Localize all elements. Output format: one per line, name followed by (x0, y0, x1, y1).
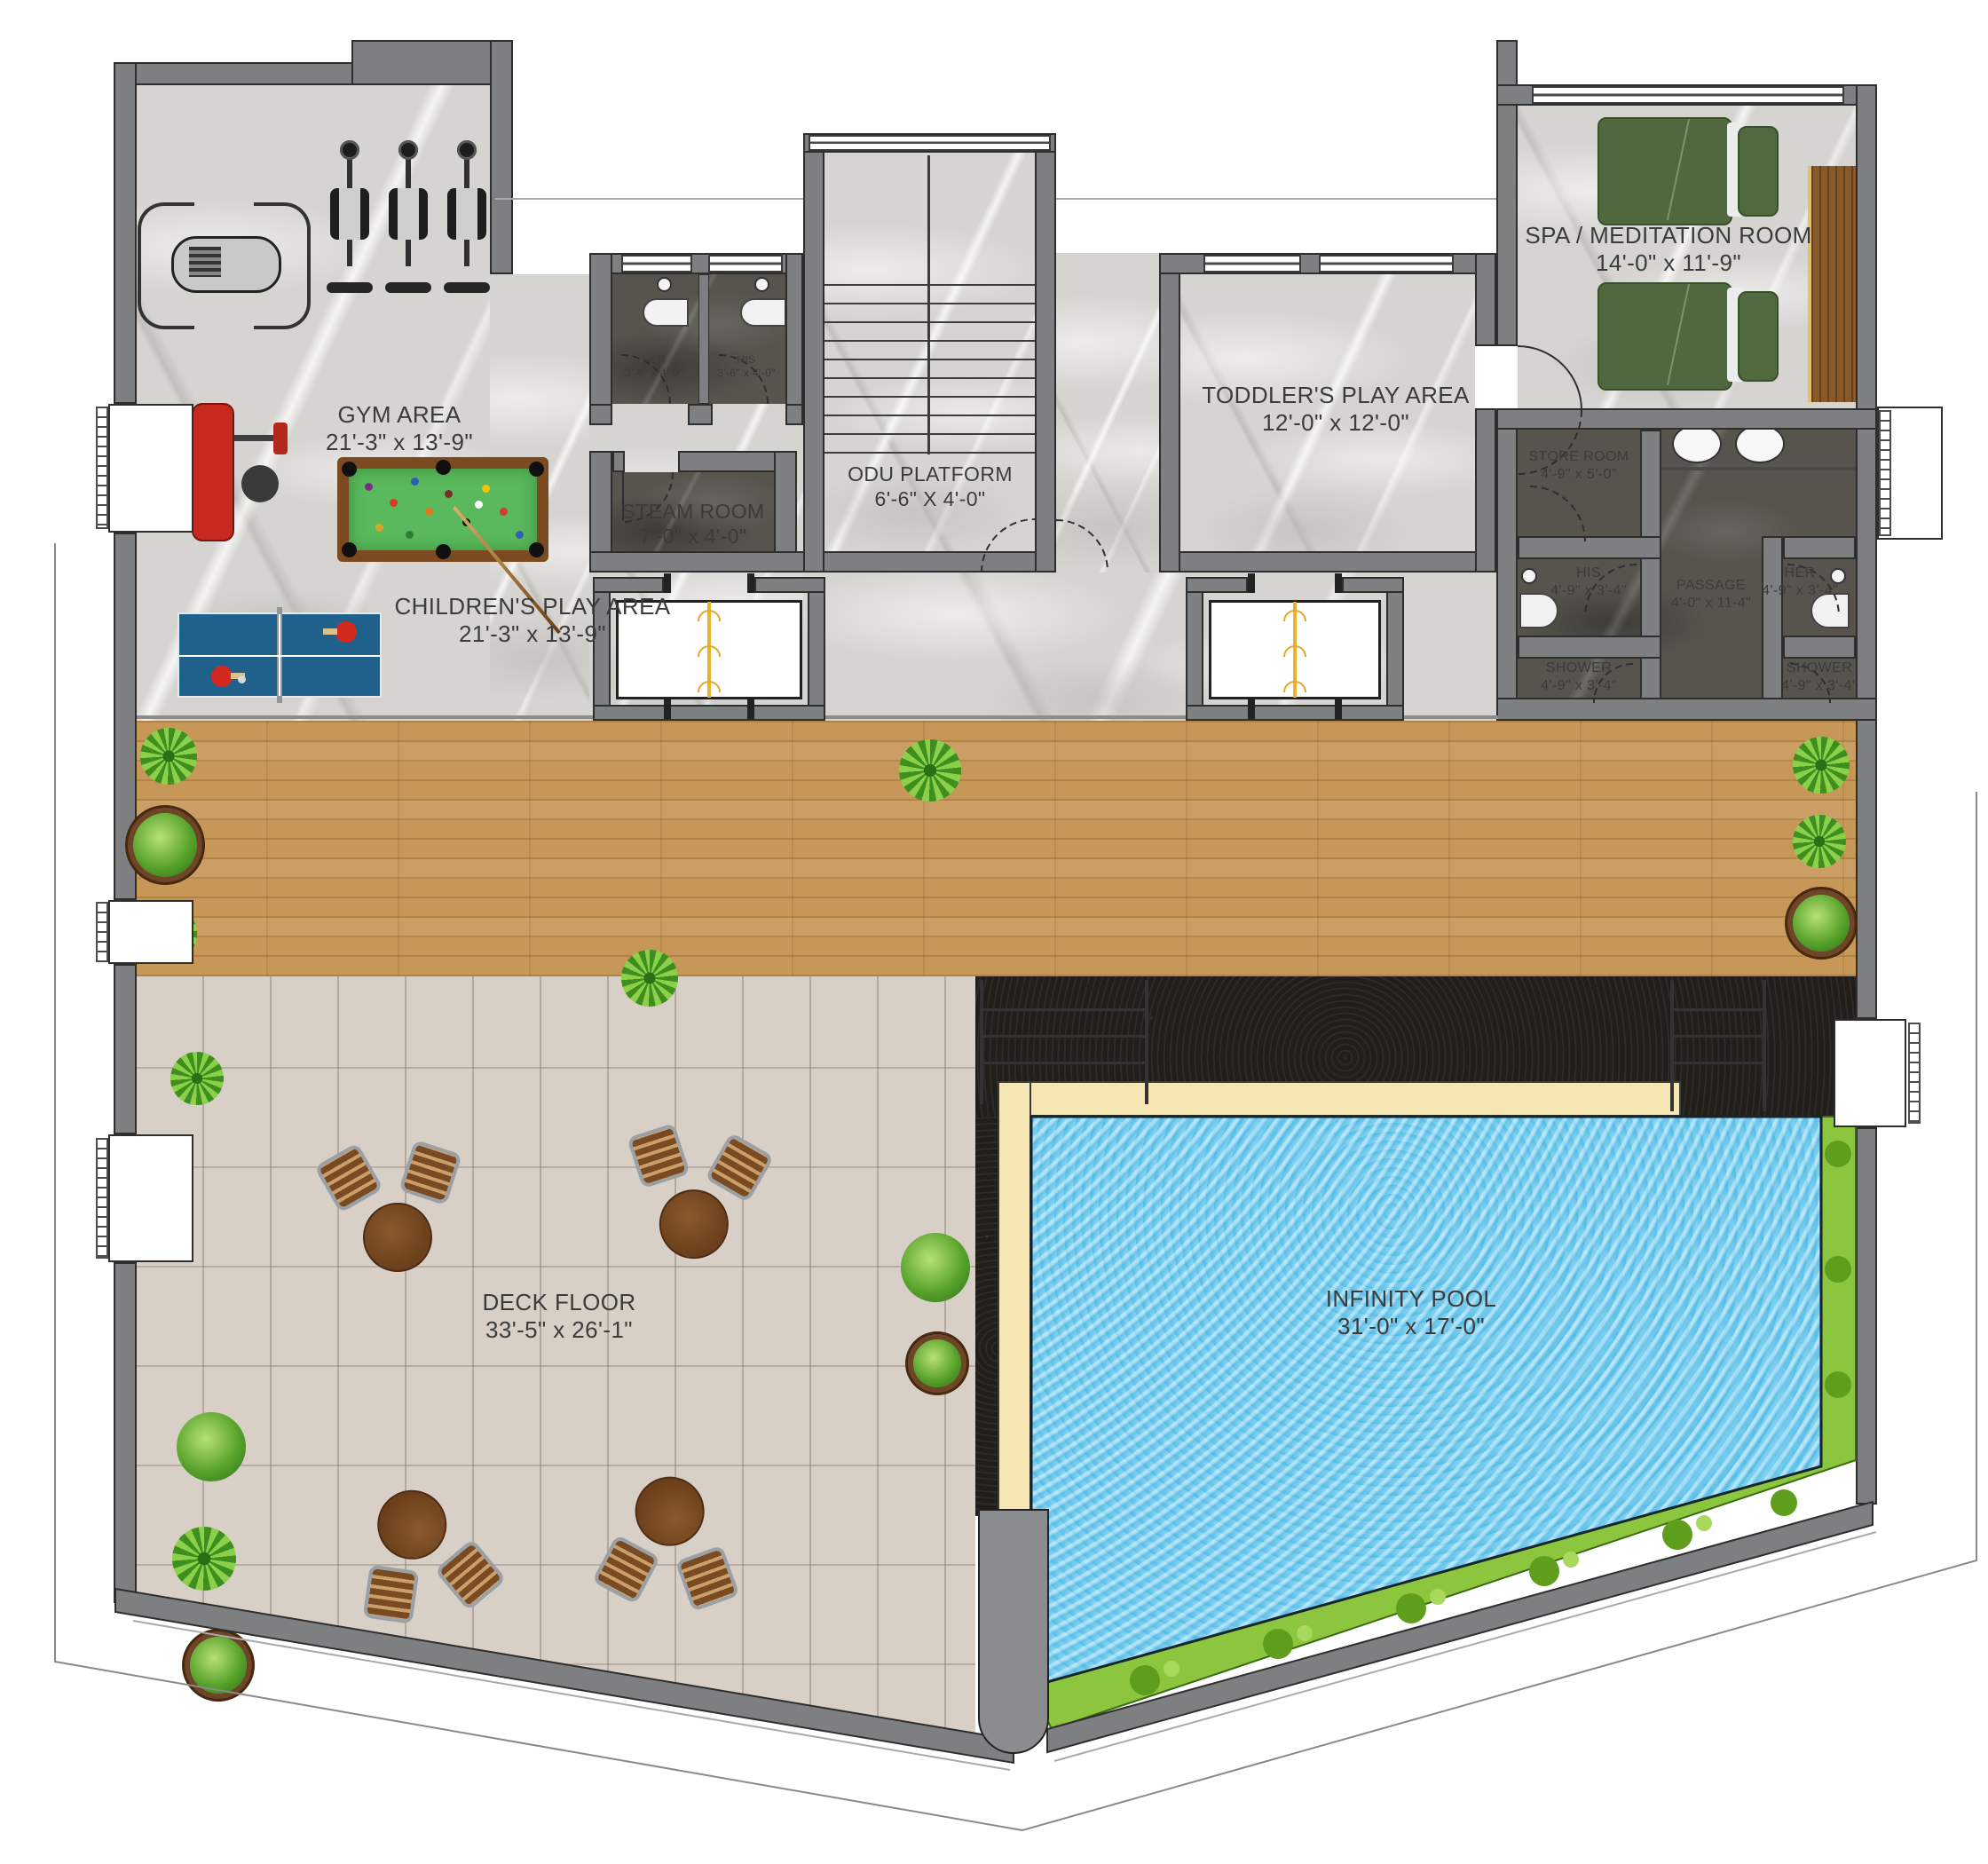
wall (1159, 551, 1518, 573)
tick (747, 573, 754, 593)
shape: SHOWER (1541, 660, 1617, 677)
bd (1597, 282, 1732, 391)
ch (363, 1565, 420, 1624)
bd (1597, 117, 1732, 225)
wall (1186, 705, 1404, 721)
pool-step (1674, 1008, 1763, 1011)
bl (365, 483, 373, 491)
sink (754, 277, 769, 292)
shape: PASSAGE (1671, 577, 1751, 595)
shape: SPA / MEDITATION ROOM (1525, 222, 1811, 249)
bl (390, 499, 398, 507)
tb (629, 1471, 709, 1551)
wall (114, 62, 137, 404)
cardio-machine (442, 140, 492, 293)
wall (754, 577, 825, 593)
gp2 (1430, 1589, 1446, 1605)
pillar (978, 1509, 1049, 1754)
wall (593, 577, 664, 593)
bl (425, 508, 433, 516)
balcony-railing (96, 902, 108, 962)
shape (323, 628, 337, 635)
shape: 4'-9" x 3'-4" (1762, 582, 1838, 600)
wall (1496, 698, 1877, 721)
pk (436, 544, 451, 559)
plant (913, 1339, 961, 1387)
grass-plant (1825, 1371, 1851, 1398)
wall (1518, 536, 1661, 559)
pillow (1738, 291, 1779, 382)
wall (1186, 577, 1248, 593)
wall (1518, 636, 1661, 659)
shape: DECK FLOOR (482, 1289, 635, 1316)
balcony-railing (1879, 410, 1891, 536)
pool-ladder-rail (1670, 980, 1674, 1111)
step (983, 1008, 1145, 1011)
shape: 33'-5" x 26'-1" (482, 1316, 635, 1344)
floor-plan: GYM AREA21'-3" x 13'-9" CHILDREN'S PLAY … (0, 0, 1988, 1864)
elevator-guide-2 (1293, 602, 1297, 698)
gp2 (1297, 1625, 1313, 1641)
shape: 31'-0" x 17'-0" (1326, 1313, 1497, 1340)
paddle (211, 666, 233, 687)
wall (114, 964, 137, 1134)
shape: 4'-9" x 3'-4" (1550, 582, 1627, 600)
shape: HIS (717, 353, 776, 367)
tick (1335, 573, 1342, 593)
tb (363, 1203, 432, 1272)
c-seat (447, 188, 486, 240)
pool-step (1674, 1035, 1763, 1038)
window (1532, 86, 1844, 104)
toddler-play-label: TODDLER'S PLAY AREA12'-0" x 12'-0" (1202, 382, 1470, 437)
wall (1342, 577, 1404, 593)
children-play-label: CHILDREN'S PLAY AREA21'-3" x 13'-9" (394, 593, 670, 648)
grass-plant (1825, 1141, 1851, 1167)
step-rail (980, 980, 983, 1104)
c-base (385, 282, 431, 293)
balcony-railing (96, 1138, 108, 1259)
window (621, 255, 692, 272)
store-room-label: STORE ROOM4'-9" x 5'-0" (1528, 448, 1629, 484)
dining-set (575, 1434, 755, 1615)
wall (1475, 408, 1496, 573)
tick (1248, 573, 1255, 593)
wall (1640, 430, 1661, 721)
wall (1186, 577, 1203, 721)
toilet (740, 298, 786, 327)
shape: 6'-6" X 4'-0" (848, 486, 1013, 511)
pool-ladder-rail (1763, 980, 1766, 1111)
spa-wardrobe (1808, 166, 1856, 402)
dining-set (607, 1119, 792, 1304)
plant (1793, 737, 1850, 794)
wall (589, 253, 612, 425)
shape: 21'-3" x 13'-9" (326, 429, 473, 456)
steam-room-label: STEAM ROOM7'-0" x 4'-0" (621, 499, 764, 549)
ch (314, 1142, 383, 1213)
c-head (457, 140, 477, 160)
cardio-machine (325, 140, 375, 293)
bl (482, 485, 490, 493)
wall (1386, 577, 1404, 721)
shape: SHOWER (1781, 660, 1858, 677)
his-label: HIS4'-9" x 3'-4" (1550, 565, 1627, 600)
tb (372, 1485, 452, 1565)
plant (172, 1527, 236, 1591)
dining-set (322, 1146, 477, 1301)
shape: HER (1762, 565, 1838, 582)
c-seat (330, 188, 369, 240)
bl (375, 524, 383, 532)
basin (1735, 424, 1785, 463)
pool-coping-top (998, 1081, 1681, 1117)
pk (529, 462, 544, 477)
ping-pong-table (177, 612, 382, 698)
plant (901, 1233, 970, 1302)
balcony-railing (1908, 1023, 1921, 1124)
grass-plant (1771, 1489, 1797, 1516)
tick (664, 699, 671, 719)
pool-table (337, 457, 548, 562)
shower-left-label: SHOWER4'-9" x 3'-4" (1541, 660, 1617, 695)
plant (177, 1412, 246, 1481)
tt-ball (238, 675, 246, 683)
wall (785, 404, 803, 425)
toilet (643, 298, 689, 327)
cb-body (171, 236, 281, 293)
window (1203, 255, 1301, 272)
her-toilet-label: HER3'-6" x 4'-0" (625, 353, 683, 380)
grass-plant (1529, 1556, 1559, 1586)
bp-wR (273, 423, 288, 454)
tb (653, 1183, 736, 1266)
c-head (340, 140, 359, 160)
sink (1521, 568, 1537, 584)
wall (1035, 133, 1056, 573)
c-base (327, 282, 373, 293)
ch (398, 1140, 462, 1205)
plant (621, 950, 678, 1007)
bl (411, 478, 419, 486)
stair-divider (927, 155, 930, 454)
shape: 21'-3" x 13'-9" (394, 620, 670, 648)
wall (1159, 253, 1180, 573)
balcony (108, 900, 193, 964)
elevator-guide-1 (707, 602, 711, 698)
wall (688, 404, 713, 425)
cable-machine (138, 202, 311, 322)
shape: CHILDREN'S PLAY AREA (394, 593, 670, 620)
shower-right-label: SHOWER4'-9" x 3'-4" (1781, 660, 1858, 695)
window (1319, 255, 1454, 272)
shape: TODDLER'S PLAY AREA (1202, 382, 1470, 409)
wall (1783, 636, 1856, 659)
shape: 4'-9" x 3'-4" (1781, 677, 1858, 695)
pk (529, 542, 544, 557)
grass-plant (1396, 1593, 1426, 1623)
his-toilet-label: HIS3'-6" x 4'-0" (717, 353, 776, 380)
grass-plant (1130, 1665, 1160, 1695)
ch (675, 1544, 740, 1612)
plant (1793, 895, 1850, 952)
wall (1496, 408, 1877, 430)
pk (436, 460, 451, 475)
pk (342, 462, 357, 477)
cardio-machine (383, 140, 433, 293)
bl (475, 501, 483, 509)
tick (664, 573, 671, 593)
shape: 3'-6" x 4'-0" (717, 367, 776, 380)
step (983, 1062, 1145, 1064)
wall (785, 253, 803, 425)
shape: 4'-9" x 5'-0" (1528, 466, 1629, 484)
cb-stack (189, 247, 221, 277)
gym-label: GYM AREA21'-3" x 13'-9" (326, 401, 473, 456)
bp-foot (241, 465, 279, 502)
wall (612, 451, 625, 472)
shape: 7'-0" x 4'-0" (621, 524, 764, 549)
shape: STORE ROOM (1528, 448, 1629, 466)
wall (1496, 408, 1518, 721)
tick (747, 699, 754, 719)
pillow (1738, 126, 1779, 217)
bl (406, 531, 414, 539)
balcony (1834, 1019, 1906, 1127)
wall (589, 404, 612, 425)
pool-step (1674, 1062, 1763, 1064)
plant (133, 813, 197, 877)
deck-floor-label: DECK FLOOR33'-5" x 26'-1" (482, 1289, 635, 1344)
sink (657, 277, 672, 292)
balcony (108, 1134, 193, 1262)
pool-coping-left (998, 1081, 1031, 1513)
passage-label: PASSAGE4'-0" x 11-4" (1671, 577, 1751, 612)
step-rail (1145, 980, 1148, 1104)
tt-vln (279, 614, 280, 696)
c-base (444, 282, 490, 293)
wall (698, 274, 709, 404)
wood-deck (135, 721, 1856, 979)
basin (1672, 424, 1722, 463)
gp2 (1164, 1661, 1179, 1677)
wall (114, 1262, 137, 1603)
dining-set (322, 1449, 502, 1629)
spa-bed (1597, 282, 1779, 387)
c-seat (389, 188, 428, 240)
wall (1856, 84, 1877, 1019)
paddle (335, 621, 357, 643)
c-head (398, 140, 418, 160)
bl (445, 490, 453, 498)
shape: 12'-0" x 12'-0" (1202, 409, 1470, 437)
pk (342, 542, 357, 557)
spa-bed (1597, 117, 1779, 222)
wall (1856, 1127, 1877, 1505)
shape: HIS (1550, 565, 1627, 582)
gp2 (1563, 1552, 1579, 1568)
plant (899, 739, 961, 802)
balcony-railing (96, 407, 108, 529)
bp-pad (192, 403, 234, 541)
plant (140, 728, 197, 785)
shape: HER (625, 353, 683, 367)
plant (1793, 815, 1846, 868)
grass-plant (1263, 1629, 1293, 1659)
window (708, 255, 783, 272)
infinity-pool-label: INFINITY POOL31'-0" x 17'-0" (1326, 1285, 1497, 1340)
grass-plant (1662, 1520, 1692, 1550)
shape: 4'-9" x 3'-4" (1541, 677, 1617, 695)
plant (190, 1637, 247, 1694)
wall (1475, 253, 1496, 346)
window (809, 135, 1051, 151)
wall (1783, 536, 1856, 559)
shape: ODU PLATFORM (848, 462, 1013, 486)
bl (516, 531, 524, 539)
counter-edge (1661, 467, 1856, 470)
wall (803, 133, 824, 573)
wall (593, 705, 825, 721)
spa-label: SPA / MEDITATION ROOM14'-0" x 11'-9" (1525, 222, 1811, 277)
gp2 (1696, 1515, 1712, 1531)
shape: 4'-0" x 11-4" (1671, 595, 1751, 612)
shape: STEAM ROOM (621, 499, 764, 524)
tick (1248, 699, 1255, 719)
grass-plant (1825, 1256, 1851, 1283)
shape: 14'-0" x 11'-9" (1525, 249, 1811, 277)
ch (627, 1123, 690, 1189)
wall (351, 40, 513, 85)
shape: GYM AREA (326, 401, 473, 429)
shape: INFINITY POOL (1326, 1285, 1497, 1313)
balcony (108, 404, 193, 533)
wall (808, 577, 825, 721)
step (983, 1035, 1145, 1038)
her-label: HER4'-9" x 3'-4" (1762, 565, 1838, 600)
shape: 3'-6" x 4'-0" (625, 367, 683, 380)
wall (490, 40, 513, 274)
tick (1335, 699, 1342, 719)
bl (500, 508, 508, 516)
plant (170, 1052, 224, 1105)
odu-platform-label: ODU PLATFORM6'-6" X 4'-0" (848, 462, 1013, 511)
wall (114, 62, 353, 85)
